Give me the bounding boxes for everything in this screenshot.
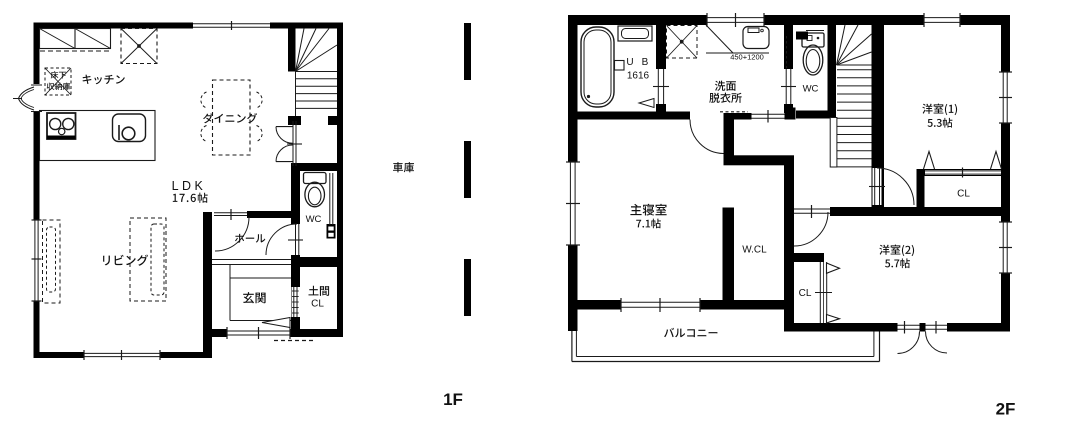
svg-text:CL: CL <box>799 288 812 299</box>
svg-text:WC: WC <box>306 214 322 225</box>
svg-text:1616: 1616 <box>627 71 650 82</box>
svg-text:LDK: LDK <box>172 179 207 193</box>
svg-text:CL: CL <box>957 189 970 200</box>
svg-text:WC: WC <box>803 83 819 94</box>
svg-text:1F: 1F <box>443 390 463 409</box>
svg-text:2F: 2F <box>996 399 1016 418</box>
svg-text:W.CL: W.CL <box>742 245 767 256</box>
svg-text:CL: CL <box>311 299 324 310</box>
svg-text:U: U <box>626 57 633 68</box>
svg-text:450+1200: 450+1200 <box>730 53 764 62</box>
svg-text:B: B <box>642 57 649 68</box>
